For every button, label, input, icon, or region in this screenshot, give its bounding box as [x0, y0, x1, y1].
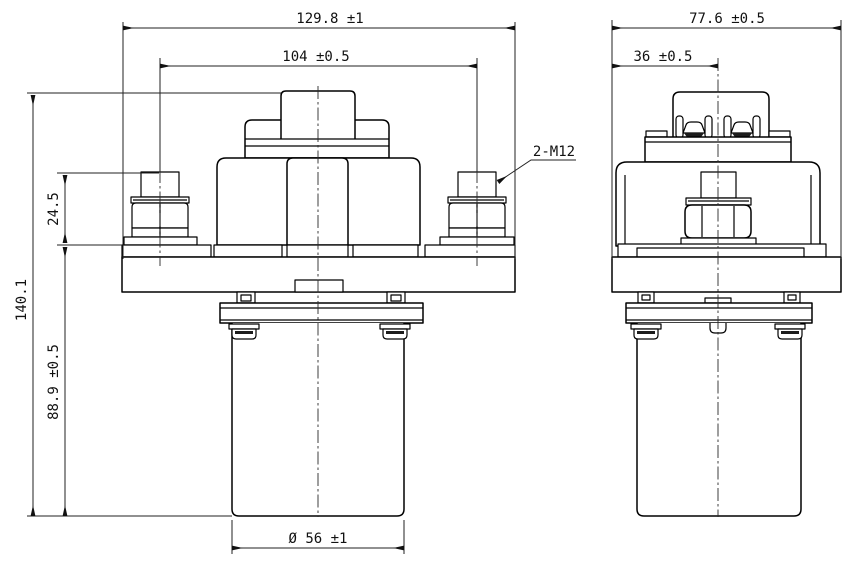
terminal-prong	[705, 116, 712, 138]
dim-text-cylinder-diameter: Ø 56 ±1	[288, 531, 347, 547]
foot	[353, 245, 418, 257]
bolt-head-shadow	[781, 331, 799, 334]
center-column	[287, 158, 348, 245]
front-lower-assembly	[220, 292, 423, 516]
bolt-washer	[775, 324, 805, 329]
bolt-head-shadow	[235, 331, 253, 334]
plate-center-boss	[295, 280, 343, 292]
mounting-plate	[612, 257, 841, 292]
dim-text-body-height: 88.9 ±0.5	[46, 344, 62, 420]
foot	[214, 245, 282, 257]
terminal-prong	[753, 116, 760, 138]
dim-text-overall-height: 140.1	[14, 279, 30, 321]
pad	[122, 245, 211, 257]
flange-tab-notch	[241, 295, 251, 301]
base-lip-inner	[637, 248, 804, 257]
front-feet	[122, 245, 515, 257]
terminal-prong	[676, 116, 683, 138]
cylinder	[637, 323, 801, 516]
label-thread-callout: 2-M12	[533, 144, 575, 160]
bolt-head-shadow	[637, 331, 655, 334]
foot	[287, 245, 348, 257]
dim-text-center-offset: 36 ±0.5	[633, 49, 692, 65]
bolt-washer	[380, 324, 410, 329]
front-view	[122, 86, 515, 517]
stud-top	[701, 172, 736, 198]
front-stud-left	[124, 172, 197, 245]
terminal-screw	[683, 122, 705, 133]
band-tab	[769, 131, 790, 137]
bolt-head-shadow	[386, 331, 404, 334]
dim-text-stud-spacing: 104 ±0.5	[282, 49, 349, 65]
bolt-washer	[229, 324, 259, 329]
side-view	[612, 58, 841, 517]
flange-tab-notch	[642, 295, 650, 300]
engineering-drawing: 129.8 ±1 104 ±0.5 140.1 24.5 88.9 ±0.5 Ø…	[0, 0, 860, 570]
bolt-washer	[631, 324, 661, 329]
side-lower-assembly	[626, 292, 812, 516]
flange-tab-notch	[788, 295, 796, 300]
dim-text-stud-height: 24.5	[46, 192, 62, 226]
terminal-screw	[731, 122, 753, 133]
front-housing	[217, 91, 420, 245]
dim-text-overall-width: 129.8 ±1	[296, 11, 363, 27]
flange-tab-notch	[391, 295, 401, 301]
pad	[425, 245, 515, 257]
stud-washer	[124, 237, 197, 245]
band-tab	[646, 131, 667, 137]
terminal-prong	[724, 116, 731, 138]
leader-line-thread	[498, 160, 576, 182]
dim-text-overall-depth: 77.6 ±0.5	[689, 11, 765, 27]
drawing-canvas: 129.8 ±1 104 ±0.5 140.1 24.5 88.9 ±0.5 Ø…	[0, 0, 860, 570]
